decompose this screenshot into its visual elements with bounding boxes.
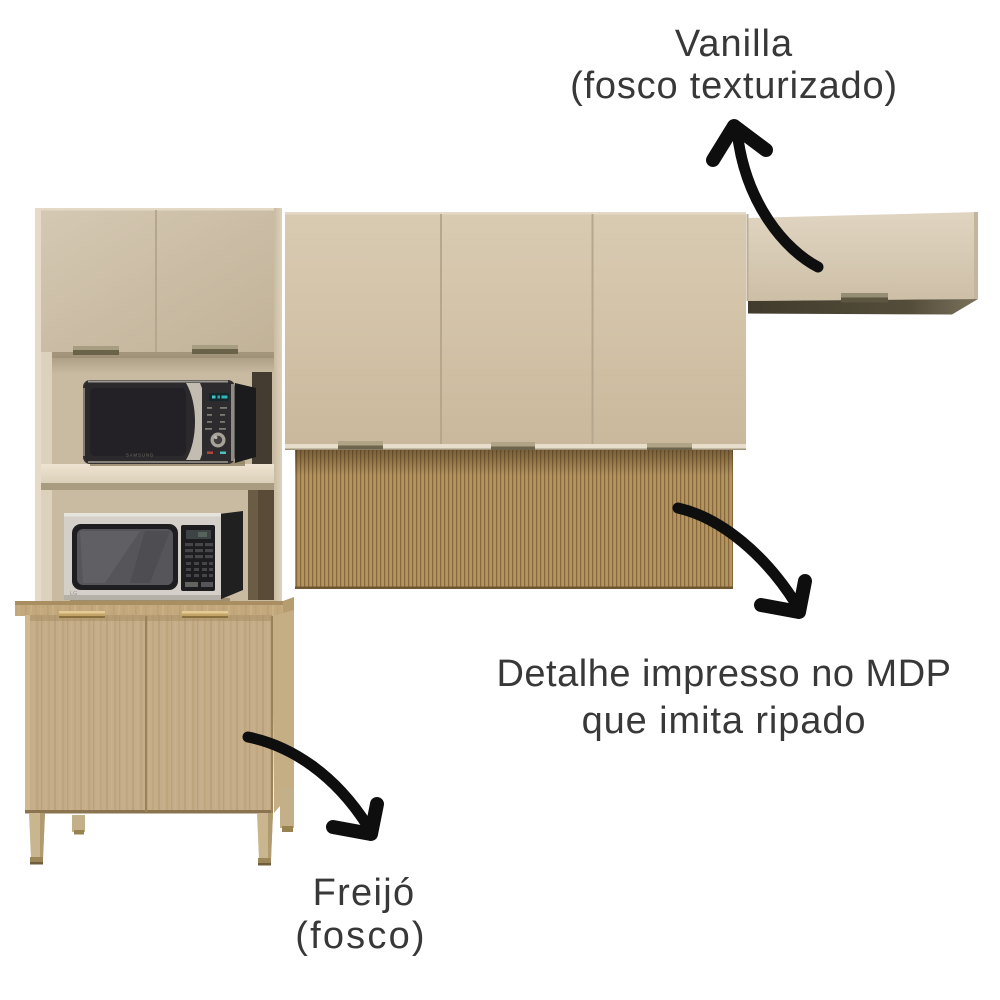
svg-text:LG: LG — [70, 591, 77, 597]
svg-text:que imita ripado: que imita ripado — [582, 700, 867, 742]
svg-text:Freijó: Freijó — [313, 872, 416, 914]
svg-text:(fosco texturizado): (fosco texturizado) — [570, 65, 898, 107]
svg-text:SAMSUNG: SAMSUNG — [126, 453, 154, 458]
svg-text:Detalhe impresso no MDP: Detalhe impresso no MDP — [496, 653, 951, 695]
svg-text:Vanilla: Vanilla — [675, 23, 793, 65]
svg-text:(fosco): (fosco) — [295, 915, 427, 957]
